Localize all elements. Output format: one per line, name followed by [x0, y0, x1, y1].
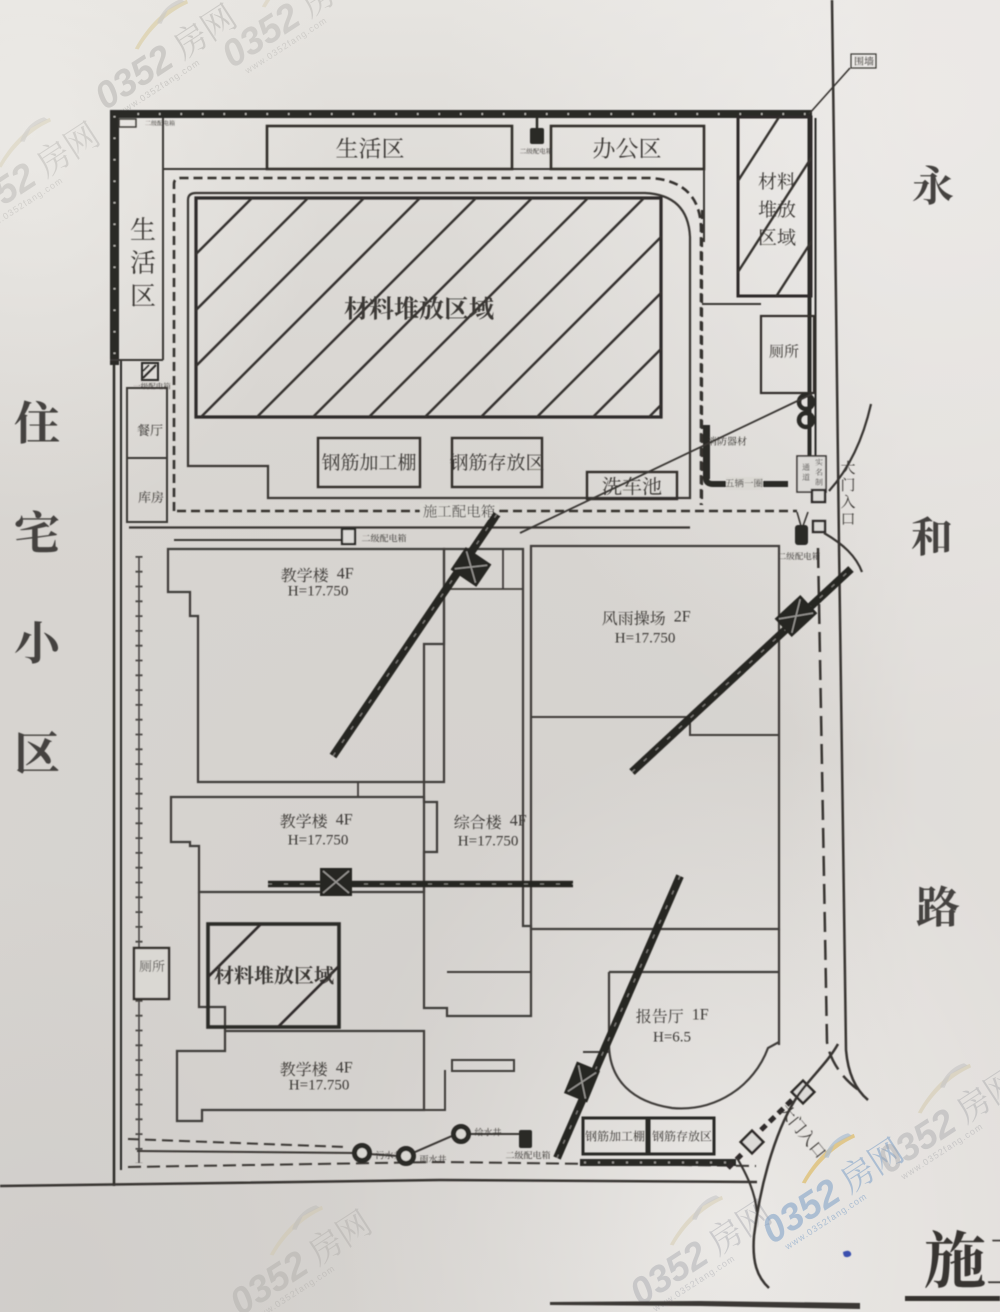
svg-text:H=17.750: H=17.750: [288, 832, 349, 848]
svg-text:H=6.5: H=6.5: [653, 1029, 691, 1045]
svg-text:4F: 4F: [328, 812, 353, 829]
svg-text:2F: 2F: [666, 609, 691, 626]
svg-text:4F: 4F: [328, 1060, 353, 1077]
svg-text:4F: 4F: [502, 813, 527, 830]
svg-text:H=17.750: H=17.750: [288, 583, 349, 599]
svg-text:4F: 4F: [329, 566, 354, 583]
svg-text:H=17.750: H=17.750: [289, 1077, 350, 1093]
svg-text:H=17.750: H=17.750: [458, 833, 519, 849]
svg-text:1F: 1F: [684, 1007, 709, 1024]
svg-text:H=17.750: H=17.750: [615, 630, 676, 646]
